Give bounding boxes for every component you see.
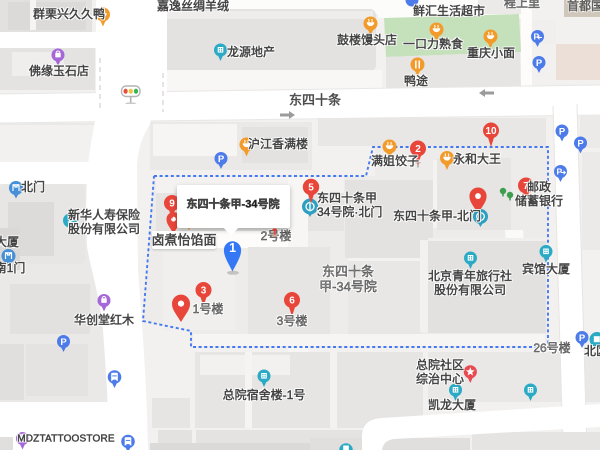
svg-text:5: 5 <box>308 183 314 194</box>
svg-text:6: 6 <box>289 296 295 307</box>
svg-text:P: P <box>536 58 543 69</box>
svg-text:P: P <box>556 167 562 177</box>
svg-text:P: P <box>559 127 566 138</box>
svg-text:P: P <box>579 333 586 344</box>
svg-text:1: 1 <box>229 241 236 255</box>
svg-text:P: P <box>218 154 225 165</box>
svg-text:3: 3 <box>201 286 207 297</box>
svg-text:P: P <box>60 337 67 348</box>
svg-text:10: 10 <box>485 126 497 137</box>
svg-text:9: 9 <box>169 199 175 210</box>
svg-text:P: P <box>577 139 584 150</box>
